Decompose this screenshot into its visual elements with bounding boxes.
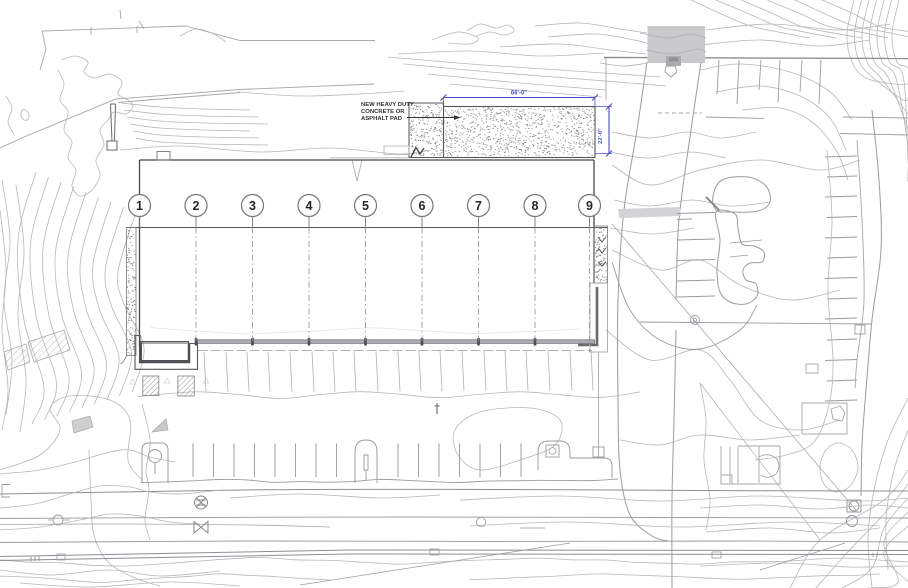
svg-text:6: 6 (419, 199, 426, 213)
svg-text:8: 8 (532, 199, 539, 213)
svg-text:9: 9 (586, 199, 593, 213)
svg-text:5: 5 (362, 199, 369, 213)
svg-text:4: 4 (306, 199, 313, 213)
svg-text:CONCRETE OR: CONCRETE OR (361, 109, 405, 115)
svg-text:2: 2 (193, 199, 200, 213)
svg-text:1: 1 (136, 199, 143, 213)
svg-text:NEW HEAVY DUTY: NEW HEAVY DUTY (361, 102, 414, 108)
svg-text:66'-0": 66'-0" (511, 91, 527, 97)
svg-text:7: 7 (475, 199, 482, 213)
svg-text:22'-0": 22'-0" (598, 128, 604, 144)
svg-text:ASPHALT PAD: ASPHALT PAD (361, 116, 402, 122)
svg-text:3: 3 (249, 199, 256, 213)
